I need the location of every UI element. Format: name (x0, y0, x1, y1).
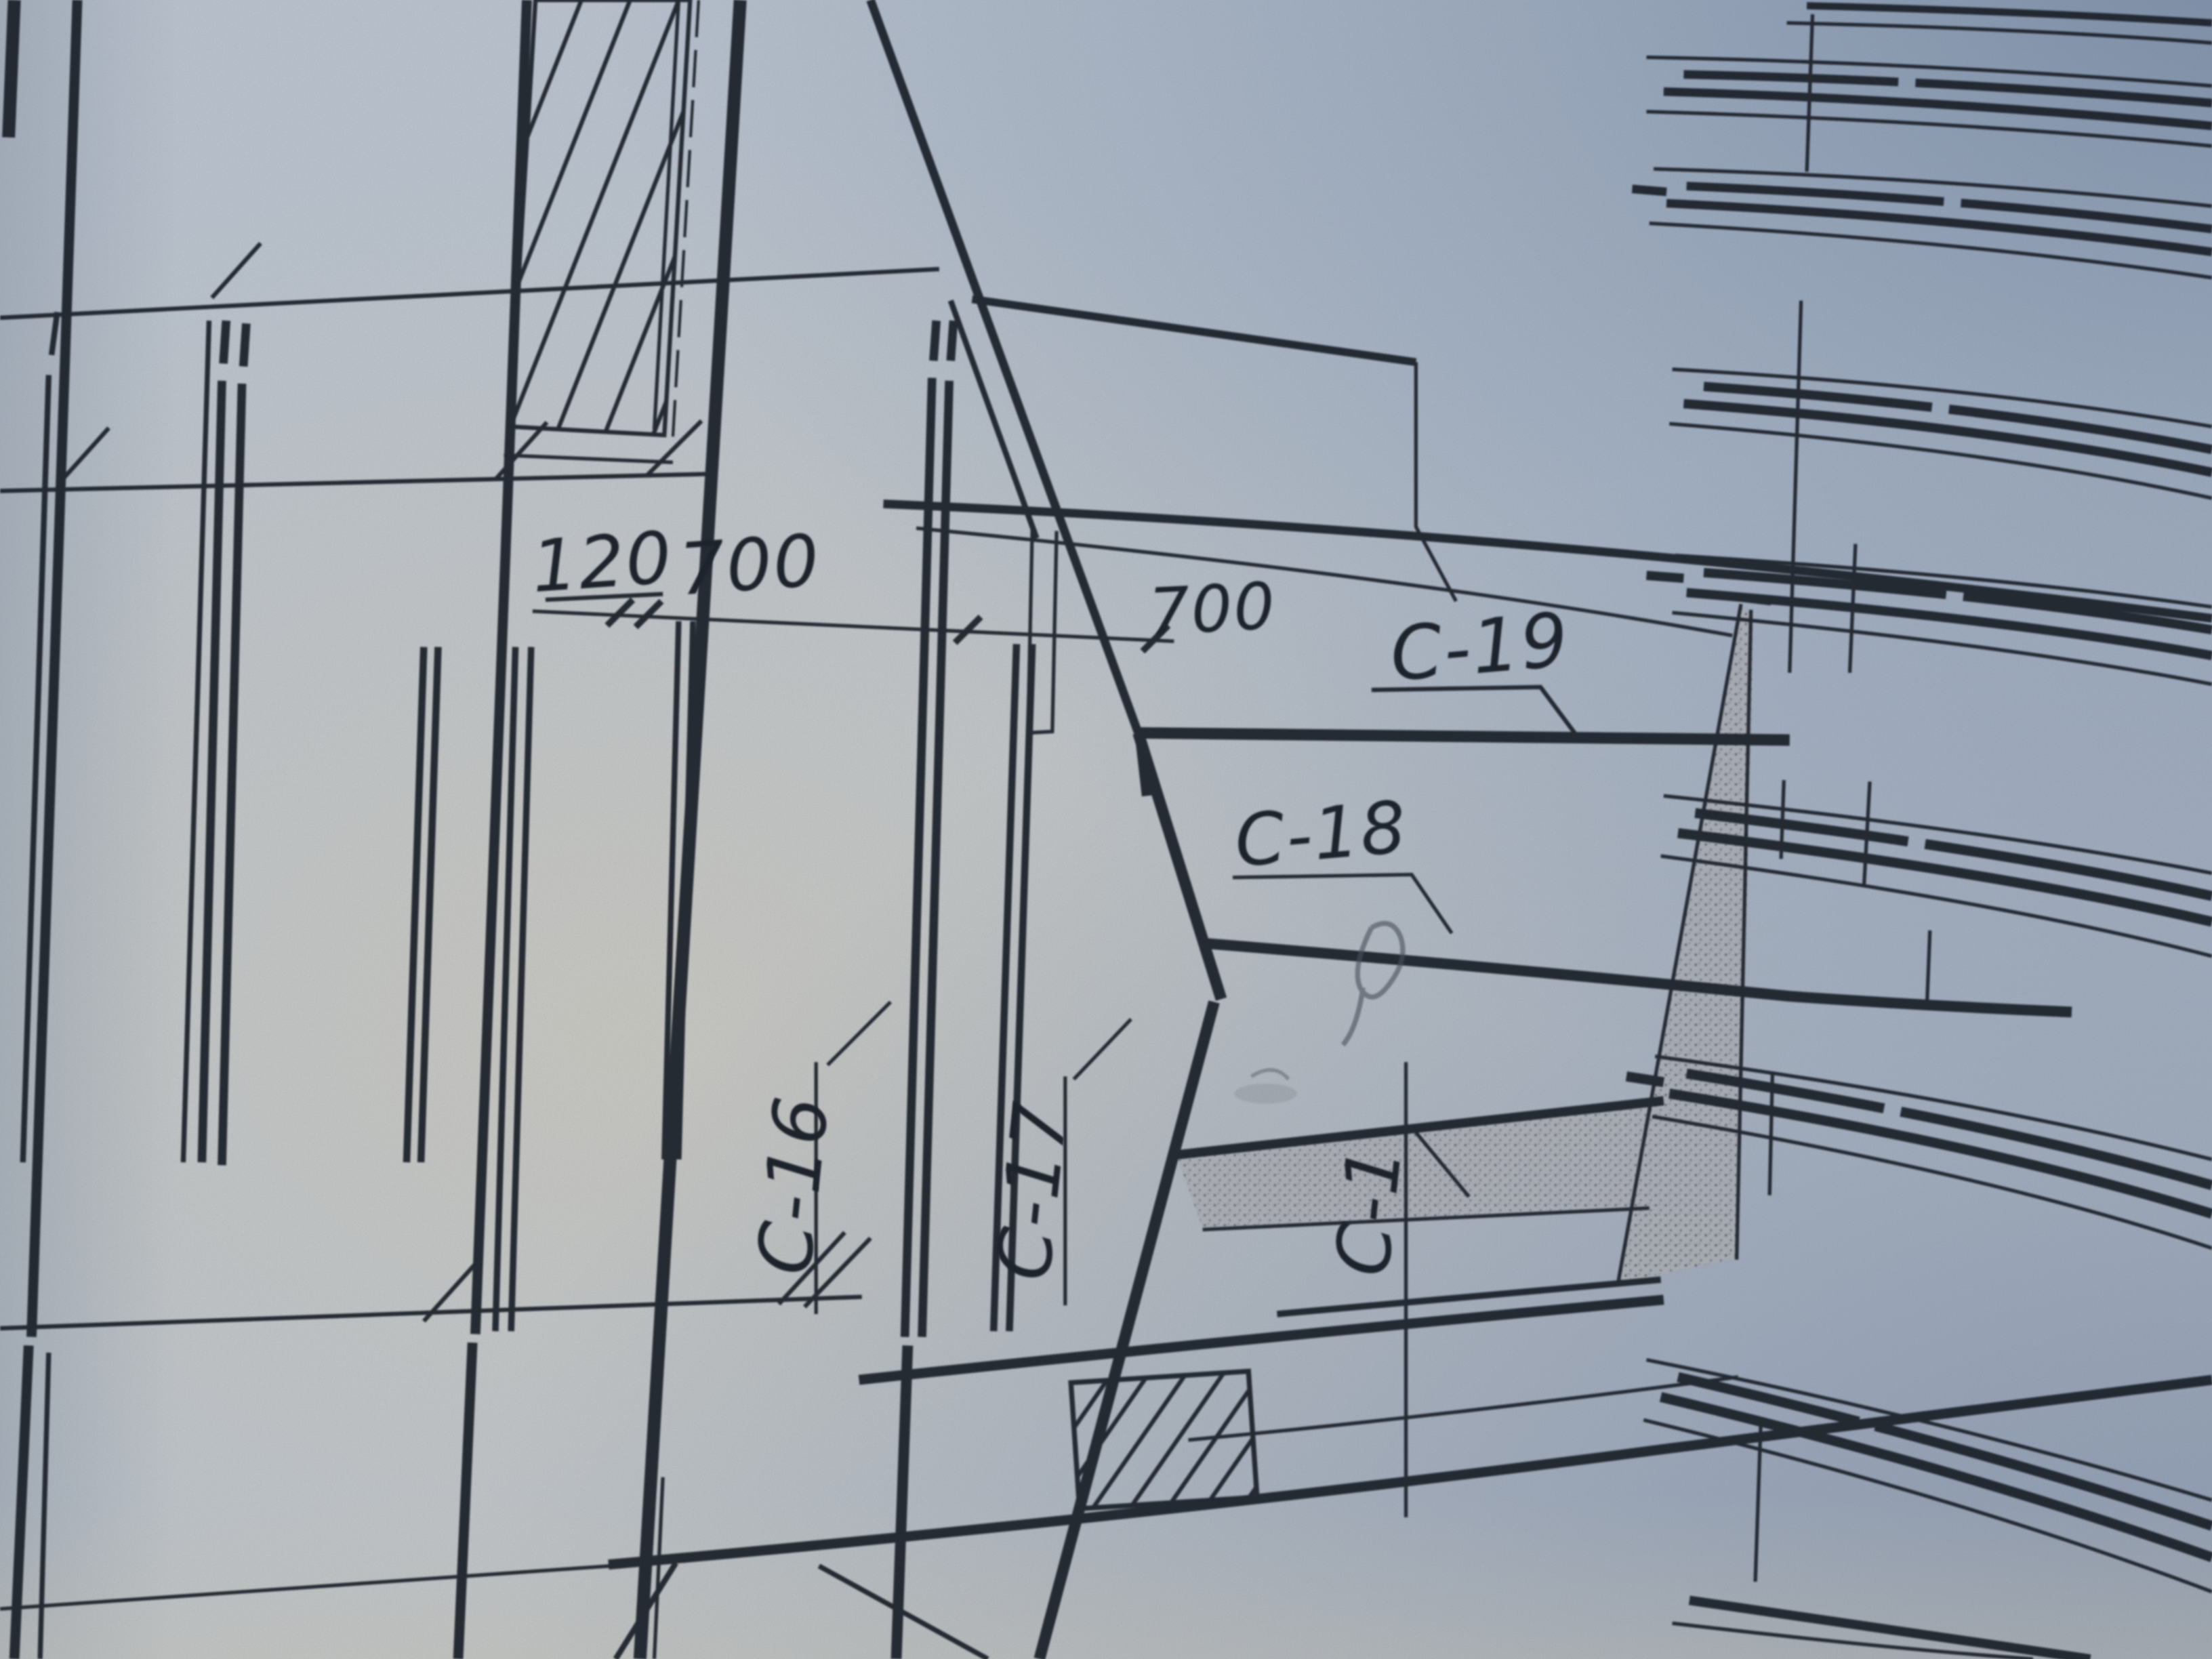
blueprint-drawing: 120 700 700 C-19 C-18 C-16 C-17 C-1 (0, 0, 2212, 1659)
blueprint-photo: 120 700 700 C-19 C-18 C-16 C-17 C-1 (0, 0, 2212, 1659)
photo-grain-overlay (0, 0, 2212, 1659)
